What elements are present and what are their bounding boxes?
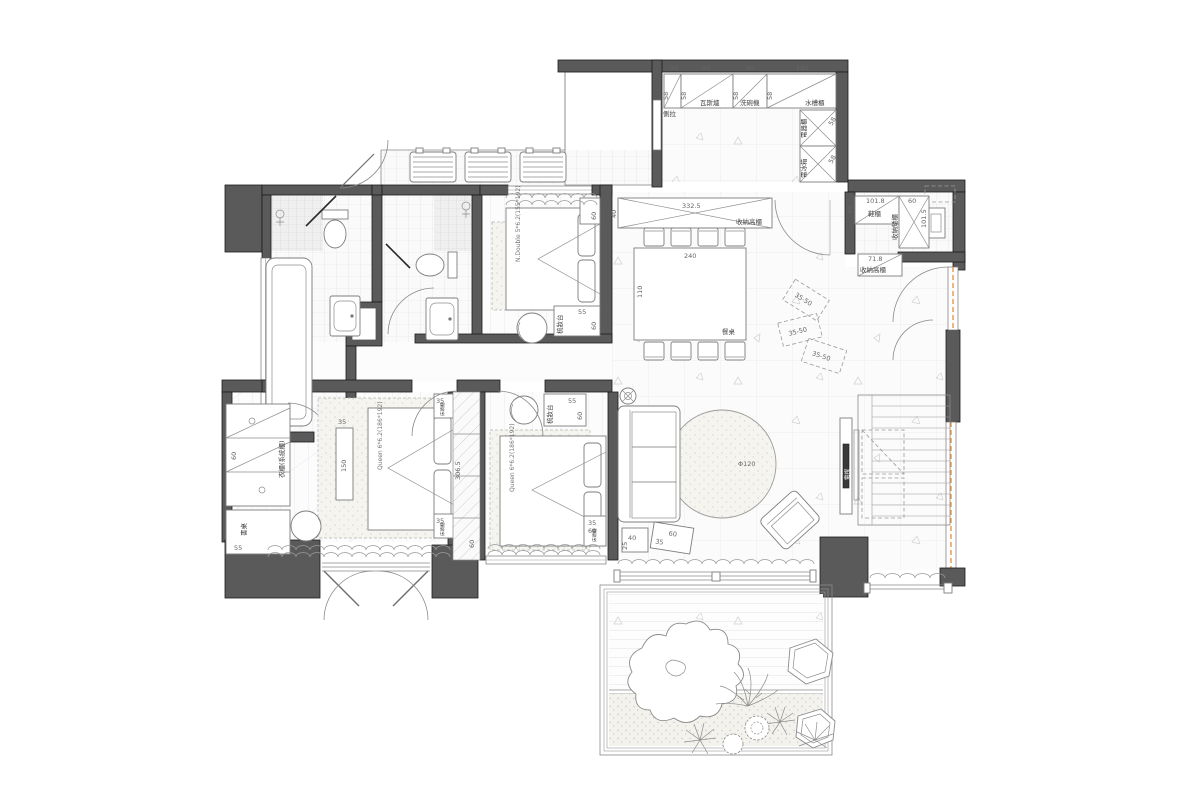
dim-101-5: 101.5 [920, 209, 928, 228]
dim-110: 110 [636, 286, 644, 298]
ac-unit [465, 148, 511, 182]
dim-306-5: 306.5 [454, 461, 462, 480]
floor-plan-drawing: 30 90 60 120 58 58 58 58 側拉 瓦斯爐 洗碗機 水槽櫃 … [0, 0, 1200, 800]
ac-unit [410, 148, 456, 182]
gas-stove-label: 瓦斯爐 [700, 98, 720, 107]
bench: 35 150 [336, 418, 353, 500]
appliance-cabinet-label: 電器櫃 [799, 118, 808, 138]
dim-120: 120 [796, 64, 808, 72]
stool [291, 511, 321, 541]
tall-storage-label: 收納高櫃 [860, 265, 887, 274]
dim-25: 25 [621, 542, 629, 550]
bed-size-label: Queen 6*6.2(186*192) [377, 401, 384, 470]
dresser-label: 梳妝台 [545, 405, 554, 425]
bedside-label: 床頭櫃 [439, 522, 446, 536]
dim-40: 40 [846, 206, 854, 214]
bedside-label: 床頭櫃 [439, 402, 446, 416]
dim-60: 60 [746, 64, 754, 72]
side-table: 60 35 [650, 522, 694, 554]
dim-90: 90 [702, 64, 710, 72]
storage-cabinet-label: 收納矮櫃 [890, 214, 899, 241]
bedside-cabinet: 35 床頭櫃 [434, 394, 454, 418]
sink-symbol [330, 296, 360, 336]
dim-60: 60 [230, 452, 238, 460]
walkin-closet: 306.5 60 [453, 392, 480, 560]
bedside-cabinet: 35 床頭櫃 [434, 514, 454, 538]
toilet-symbol [322, 210, 348, 248]
dresser: 55 60 梳妝台 [554, 306, 600, 336]
dim-40: 40 [610, 210, 618, 218]
dim-60: 60 [576, 412, 584, 420]
dim-55: 55 [568, 397, 576, 405]
rug-diameter: Φ120 [738, 460, 756, 468]
toilet-symbol [416, 252, 457, 278]
fridge-label: 電冰箱 [799, 158, 808, 178]
dresser: 55 60 梳妝台 [544, 394, 586, 426]
dim-101-8: 101.8 [866, 197, 885, 205]
desk-label: 書桌 [239, 523, 248, 537]
dim-60: 60 [668, 529, 677, 538]
bed-queen: Queen 6*6.2(186*192) [368, 401, 456, 530]
dim-71-8: 71.8 [868, 255, 882, 263]
dim-55: 55 [578, 308, 586, 316]
cabinet-label: 側拉 [663, 109, 677, 118]
dishwasher-label: 洗碗機 [740, 98, 760, 107]
floor-plan-page: 30 90 60 120 58 58 58 58 側拉 瓦斯爐 洗碗機 水槽櫃 … [0, 0, 1200, 800]
french-doors [322, 563, 430, 620]
stool [510, 396, 538, 424]
dim-30: 30 [670, 64, 678, 72]
dim-60: 60 [590, 212, 598, 220]
sink-symbol [426, 298, 458, 340]
bathtub [266, 258, 312, 426]
ac-unit [520, 148, 566, 182]
dim-35: 35 [338, 418, 346, 426]
tv-label: 電視 [843, 468, 851, 480]
bedside-cabinet: 35 60 床頭櫃 [584, 516, 606, 546]
shoe-cabinet-label: 鞋櫃 [868, 209, 882, 218]
bed-size-label: Queen 6*6.2(186*192) [509, 423, 516, 492]
dining-table-label: 餐桌 [722, 327, 736, 336]
dim-240: 240 [684, 252, 696, 260]
tall-storage-label: 收納高櫃 [736, 217, 763, 226]
dim-60: 60 [590, 322, 598, 330]
dim-60: 60 [468, 540, 476, 548]
terrace [600, 585, 835, 755]
side-table: 40 25 [621, 528, 648, 552]
wardrobe: 衣櫃(系統櫃) 60 [226, 404, 290, 506]
dim-40: 40 [628, 534, 636, 542]
bedside-label: 床頭櫃 [591, 528, 598, 542]
wardrobe-label: 衣櫃(系統櫃) [277, 440, 286, 478]
dim-58: 58 [662, 92, 670, 100]
round-rug [668, 410, 776, 518]
sofa [618, 406, 680, 522]
dim-332-5: 332.5 [682, 202, 701, 210]
dresser-label: 梳妝台 [555, 315, 564, 335]
dim-58: 58 [766, 92, 774, 100]
dim-35: 35 [655, 537, 664, 546]
dim-58: 58 [680, 92, 688, 100]
dim-150: 150 [340, 460, 348, 472]
dim-55: 55 [234, 544, 242, 552]
floor-lamp [620, 388, 636, 404]
dim-58: 58 [732, 92, 740, 100]
sink-cabinet-label: 水槽櫃 [805, 98, 825, 107]
dim-60: 60 [908, 197, 916, 205]
dim-35: 35 [588, 519, 596, 527]
stool [517, 313, 547, 343]
